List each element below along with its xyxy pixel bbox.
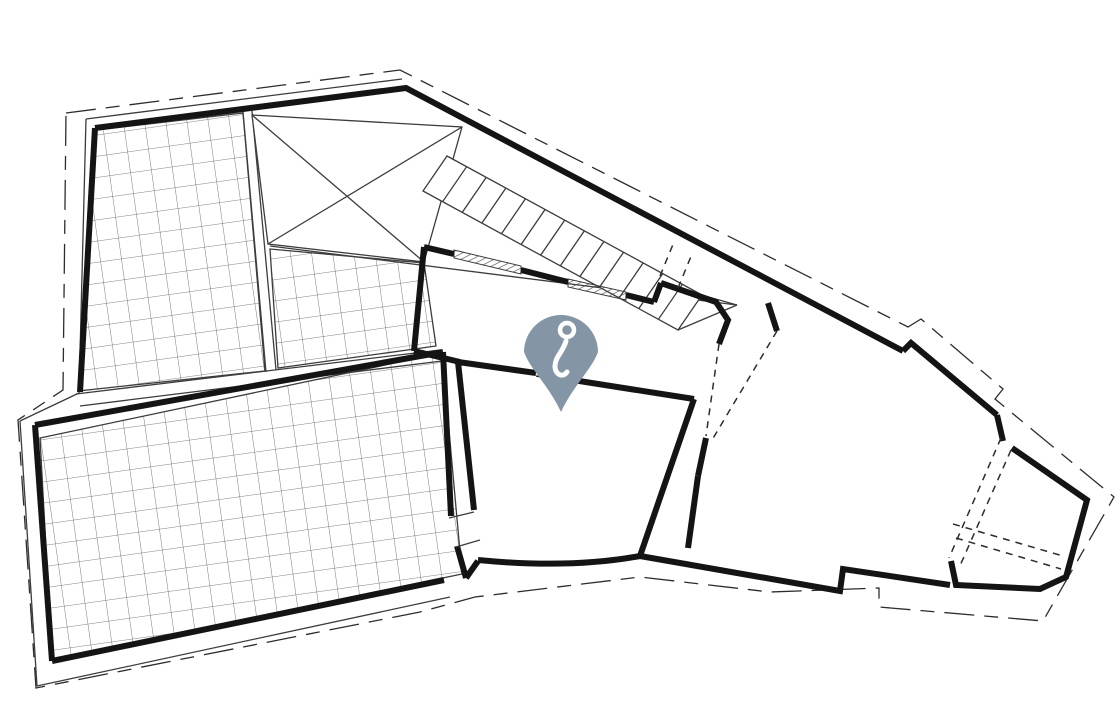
- floor-plan-canvas: [0, 0, 1120, 720]
- location-pin-marker[interactable]: [524, 315, 598, 412]
- floor-plan-svg: [0, 0, 1120, 720]
- staircase: [423, 156, 702, 330]
